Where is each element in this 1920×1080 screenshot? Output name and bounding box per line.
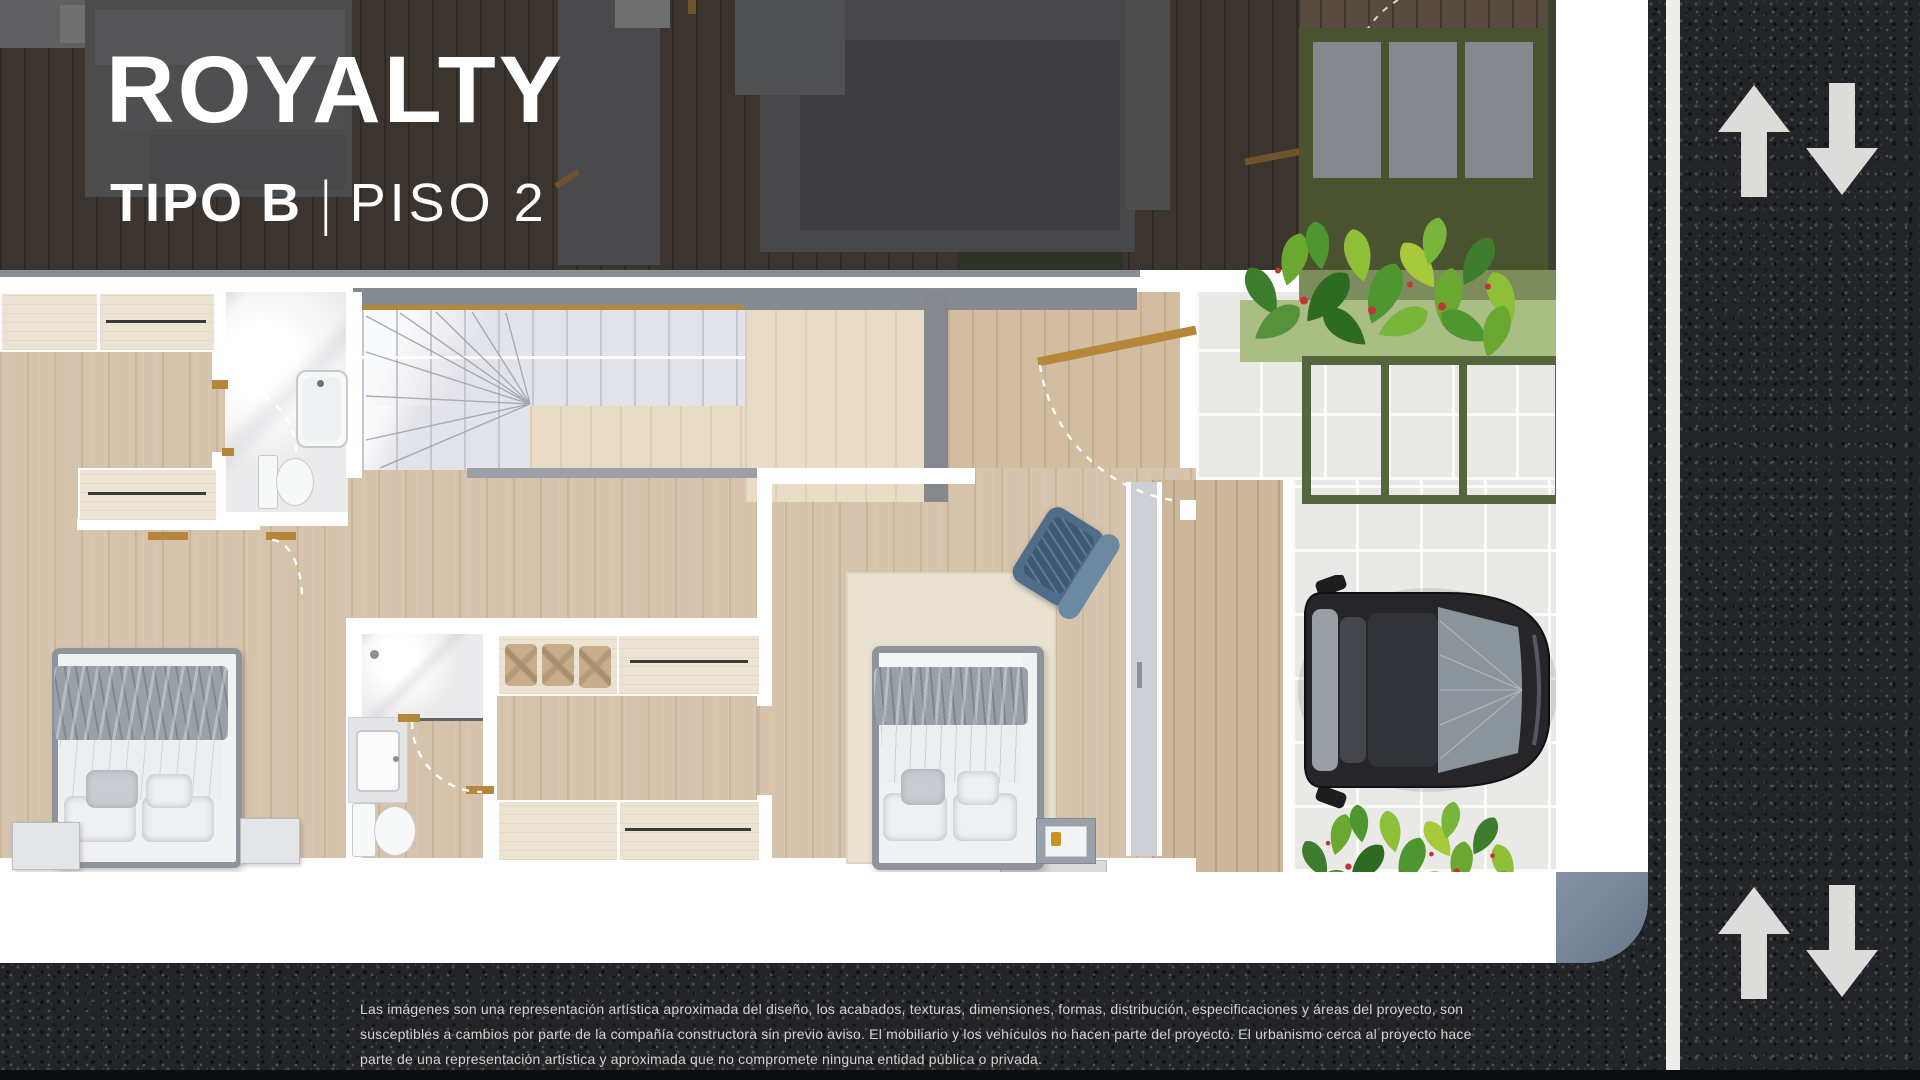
disclaimer: Las imágenes son una representación artí… [360,1000,1540,1075]
disclaimer-line: parte de una representación artística y … [360,1050,1540,1068]
floorplan-poster: Las imágenes son una representación artí… [0,0,1920,1080]
subtitle-separator: | [322,168,331,237]
page-title: ROYALTY [106,36,565,145]
subtitle-floor: PISO 2 [350,172,548,234]
floor-plan: ROYALTY TIPO B | PISO 2 [0,0,1556,872]
plant-cluster-top [1232,198,1532,363]
lane-line [1666,0,1680,1080]
bottom-edge-strip [0,1070,1920,1080]
sidewalk-vertical [1556,0,1648,872]
subtitle-type: TIPO B [110,172,302,234]
plant-cluster-bottom [1292,786,1527,872]
sidewalk-horizontal [0,872,1556,963]
disclaimer-line: Las imágenes son una representación artí… [360,1000,1540,1018]
page-subtitle: TIPO B | PISO 2 [110,168,548,237]
road-right [1648,0,1920,1080]
disclaimer-line: susceptibles a cambios por parte de la c… [360,1025,1540,1043]
